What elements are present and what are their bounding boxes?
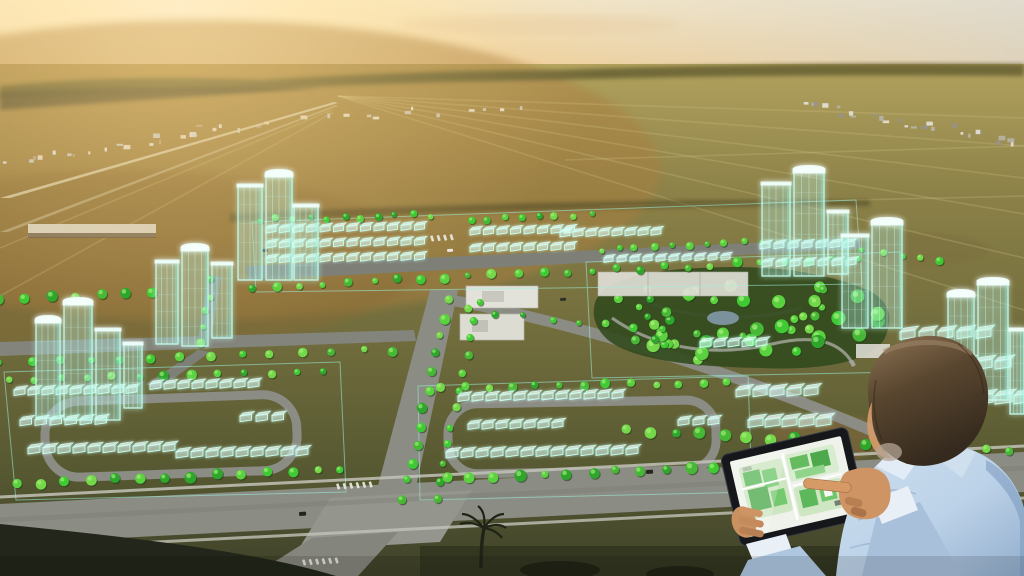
tree (531, 381, 539, 389)
tree (860, 439, 871, 450)
tree (685, 462, 697, 474)
distant-building (996, 141, 1000, 145)
tree (248, 284, 256, 292)
tree (540, 267, 549, 276)
car (646, 470, 653, 474)
tree (502, 214, 509, 221)
park-tree (695, 347, 708, 360)
tree (602, 320, 610, 328)
tree (160, 473, 170, 483)
park-tree (649, 320, 659, 330)
car (447, 249, 453, 252)
distant-building (905, 125, 909, 127)
tree (175, 352, 184, 361)
tree (617, 245, 623, 251)
tree (465, 272, 471, 278)
car (560, 298, 566, 301)
tree (720, 239, 727, 246)
car (299, 512, 306, 516)
park-tree (631, 335, 640, 344)
tree (982, 445, 990, 453)
tree (917, 254, 923, 260)
tower-beacon (181, 243, 210, 251)
tree (520, 312, 525, 317)
tree (268, 370, 276, 378)
park-tree (819, 286, 827, 294)
tree (186, 370, 197, 381)
park-tree (810, 297, 821, 308)
tree (465, 351, 473, 359)
tree (288, 467, 298, 477)
tree (704, 241, 710, 247)
tree (611, 466, 619, 474)
tower-beacon (265, 169, 294, 177)
park-tree (810, 312, 819, 321)
tree (477, 299, 484, 306)
tree (434, 495, 442, 503)
tree (445, 295, 453, 303)
tree (514, 470, 526, 482)
tree (589, 468, 600, 479)
tree (417, 403, 427, 413)
tree (344, 278, 353, 287)
tree (446, 425, 453, 432)
distant-building (804, 102, 809, 105)
tree (214, 370, 221, 377)
park-tree (792, 347, 801, 356)
tree (403, 476, 410, 483)
tree (669, 242, 675, 248)
tree (536, 213, 543, 220)
tree (416, 423, 426, 433)
tower-beacon (871, 217, 904, 225)
tree (600, 378, 610, 388)
distant-building (931, 127, 935, 131)
tree (461, 382, 469, 390)
park-tree (852, 328, 866, 342)
tower-beacon (35, 315, 61, 323)
tree (651, 243, 659, 251)
tree (416, 275, 426, 285)
tree (410, 210, 417, 217)
planner-beard (876, 443, 902, 461)
tree (636, 266, 644, 274)
tree (393, 274, 402, 283)
distant-building (999, 136, 1006, 141)
tree (97, 289, 107, 299)
tree (627, 379, 635, 387)
tree (464, 305, 472, 313)
tree (570, 213, 576, 219)
tree (110, 473, 120, 483)
tree (722, 378, 730, 386)
park-tree (661, 307, 671, 317)
distant-building (1011, 142, 1014, 147)
tree (589, 211, 595, 217)
tree (685, 265, 692, 272)
distant-building (952, 123, 957, 128)
tree (436, 383, 445, 392)
distant-building (838, 114, 843, 118)
tree (135, 473, 145, 483)
tree (452, 403, 460, 411)
park-tree (644, 313, 651, 320)
park-tree (772, 295, 785, 308)
tree (342, 213, 349, 220)
tree (319, 282, 325, 288)
tower-beacon (947, 289, 976, 297)
tree (431, 348, 439, 356)
tower-beacon (63, 297, 94, 305)
tree (185, 472, 197, 484)
tree (706, 263, 713, 270)
tree (662, 465, 671, 474)
tree (674, 381, 682, 389)
tower-beacon (793, 165, 826, 173)
park-tree (799, 312, 807, 320)
park-tree (710, 296, 718, 304)
tree (653, 382, 660, 389)
tree (491, 311, 498, 318)
tree (464, 472, 475, 483)
tree (458, 369, 466, 377)
distant-building (976, 130, 981, 134)
tree (440, 274, 450, 284)
tree (428, 214, 434, 220)
distant-building (850, 115, 856, 117)
tree (320, 368, 327, 375)
tree (120, 288, 131, 299)
tree (741, 238, 747, 244)
tree (240, 369, 247, 376)
tree (298, 348, 308, 358)
distant-building (822, 103, 828, 108)
tree (515, 269, 524, 278)
scene-canvas (0, 0, 1024, 576)
tree (561, 470, 572, 481)
tree (440, 461, 446, 467)
tree (1005, 447, 1013, 455)
tree (629, 324, 638, 333)
tree (36, 479, 47, 490)
park-tree (805, 324, 814, 333)
tree (19, 294, 29, 304)
park-tree (811, 335, 824, 348)
tree (414, 441, 423, 450)
distant-building (961, 132, 964, 135)
tree (483, 216, 491, 224)
park-tree (790, 315, 798, 323)
tree (397, 495, 406, 504)
tree (935, 257, 943, 265)
tree (6, 376, 12, 382)
tree (146, 354, 155, 363)
distant-building (926, 122, 933, 126)
park-tree (636, 304, 642, 310)
tree (550, 317, 557, 324)
tree (327, 348, 335, 356)
tree (265, 350, 273, 358)
tree (708, 463, 719, 474)
tree (699, 379, 708, 388)
tree (86, 475, 97, 486)
distant-building (921, 126, 927, 129)
tree (660, 262, 668, 270)
tree (439, 314, 450, 325)
tree (719, 429, 731, 441)
distant-building (883, 120, 889, 123)
tree (599, 248, 604, 253)
tree (550, 212, 558, 220)
tree (556, 382, 563, 389)
park-tree (646, 295, 654, 303)
distant-building (898, 118, 901, 122)
park-tree (651, 335, 659, 343)
tree (296, 283, 303, 290)
tower-beacon (977, 277, 1010, 285)
tree (470, 317, 478, 325)
distant-building (837, 105, 840, 108)
tree (239, 351, 246, 358)
tree (425, 386, 434, 395)
tree (466, 334, 473, 341)
distant-building (873, 114, 878, 116)
tree (46, 291, 57, 302)
tree (263, 467, 273, 477)
tree (387, 347, 397, 357)
tree (391, 212, 397, 218)
tree (693, 427, 705, 439)
tree (294, 369, 300, 375)
tree (659, 326, 665, 332)
tree (361, 346, 367, 352)
tree (444, 440, 452, 448)
tree (356, 215, 364, 223)
park-pond (707, 311, 739, 325)
tree (635, 466, 645, 476)
tree (375, 213, 383, 221)
tree (206, 352, 216, 362)
tree (541, 471, 548, 478)
tree (315, 466, 322, 473)
tree (645, 427, 657, 439)
tree (442, 472, 452, 482)
tree (486, 384, 494, 392)
distant-building (813, 102, 818, 107)
tree (672, 429, 681, 438)
tree (427, 367, 436, 376)
tree (436, 332, 443, 339)
tree (630, 244, 637, 251)
tree (12, 479, 21, 488)
park-tree (775, 319, 789, 333)
distant-building (968, 134, 970, 138)
tree (336, 466, 343, 473)
tree (622, 424, 631, 433)
tree (576, 320, 582, 326)
tree (589, 268, 595, 274)
tree (612, 264, 620, 272)
tree (686, 242, 694, 250)
tree (518, 214, 525, 221)
tree (323, 216, 330, 223)
distant-building (911, 126, 917, 128)
tree (486, 269, 496, 279)
tree (272, 282, 282, 292)
tree (488, 472, 499, 483)
tree (372, 278, 378, 284)
tree (468, 217, 475, 224)
tree (236, 470, 246, 480)
park-tree (693, 330, 700, 337)
tree (564, 269, 572, 277)
tree (59, 476, 69, 486)
tree (732, 257, 742, 267)
tree (508, 382, 517, 391)
aerial-sunset-scene (0, 0, 1024, 576)
tree (408, 459, 418, 469)
distant-building (849, 111, 853, 115)
distant-building (1007, 138, 1014, 142)
tree (212, 468, 223, 479)
tree (740, 431, 752, 443)
distant-building (879, 116, 883, 121)
